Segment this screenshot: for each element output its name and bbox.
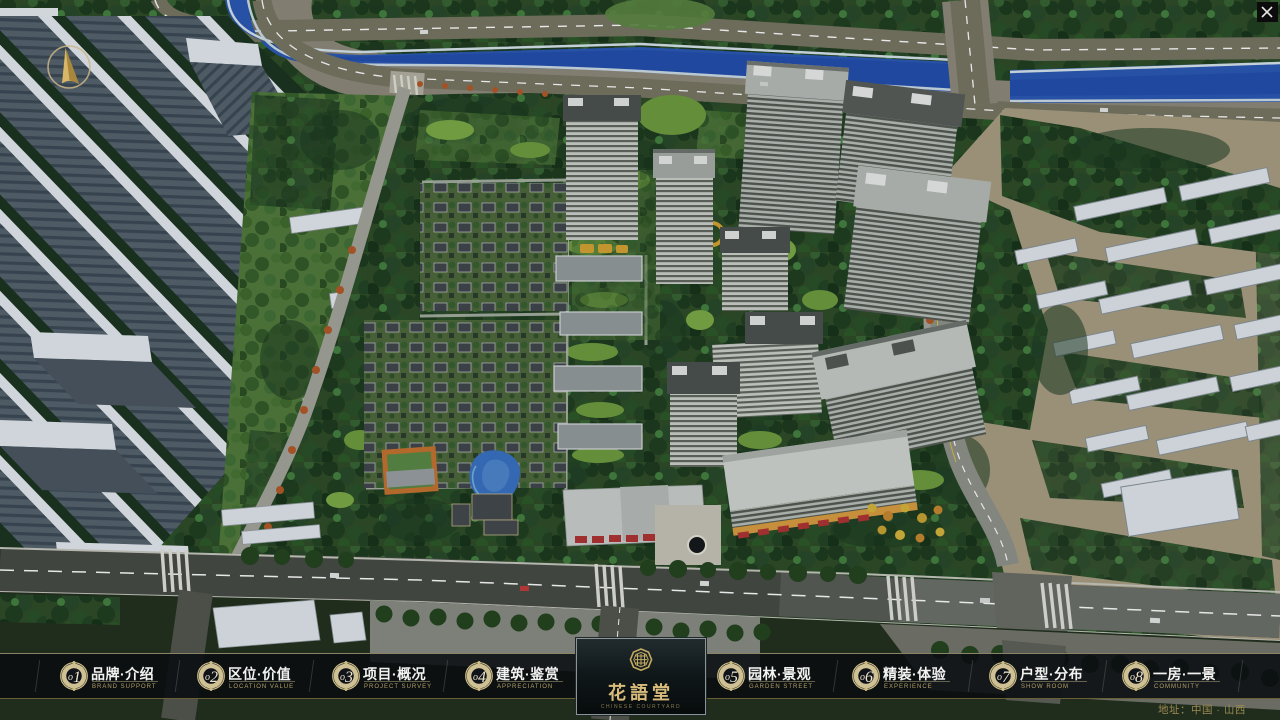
svg-text:4: 4: [478, 669, 486, 686]
svg-text:3: 3: [344, 669, 353, 686]
svg-text:花語堂: 花語堂: [608, 682, 674, 703]
svg-text:5: 5: [730, 669, 738, 686]
svg-text:8: 8: [1135, 669, 1143, 686]
svg-text:6: 6: [865, 669, 873, 686]
svg-text:7: 7: [1002, 669, 1011, 686]
svg-text:CHINESE COURTYARD: CHINESE COURTYARD: [601, 704, 681, 710]
svg-text:2: 2: [210, 669, 218, 686]
svg-text:1: 1: [73, 669, 81, 686]
